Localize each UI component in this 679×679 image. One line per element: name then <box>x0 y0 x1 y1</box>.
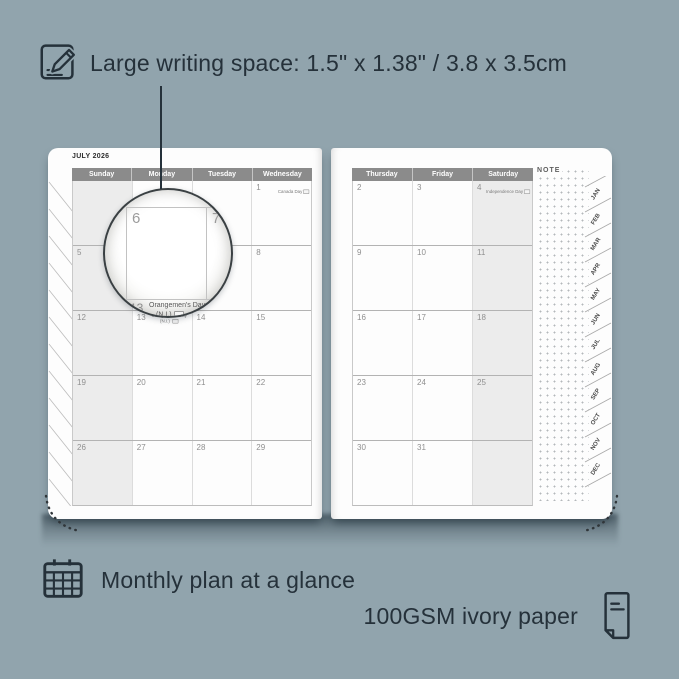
day-number: 20 <box>137 378 146 387</box>
magnified-day-13: 13 <box>130 301 143 315</box>
calendar-week-row: 161718 <box>353 310 532 375</box>
day-number: 23 <box>357 378 366 387</box>
edge-hatch-line <box>49 236 73 266</box>
edge-hatch-line <box>49 425 73 455</box>
day-number: 12 <box>77 313 86 322</box>
calendar-cell: 17 <box>412 311 472 375</box>
calendar-cell: 25 <box>472 376 532 440</box>
calendar-week-row: 26272829 <box>73 440 311 505</box>
calendar-cell: 2 <box>353 181 412 245</box>
calendar-cell: 11 <box>472 246 532 310</box>
day-number: 14 <box>197 313 206 322</box>
calendar-cell: 30 <box>353 441 412 505</box>
month-tab-nov: NOV <box>590 437 602 451</box>
holiday-label: Independence Day <box>450 183 530 201</box>
holiday-label: Canada Day <box>252 183 309 201</box>
page-curl-dotted-right <box>579 493 621 535</box>
weekday-header: Saturday <box>472 168 533 181</box>
month-tab-jul: JUL <box>591 338 602 351</box>
magnifier-grid-line <box>105 299 233 300</box>
page-curl-dotted-left <box>42 493 84 535</box>
day-number: 27 <box>137 443 146 452</box>
edge-hatch-line <box>49 452 73 482</box>
day-number: 29 <box>256 443 265 452</box>
tab-separator <box>585 423 611 437</box>
calendar-week-row: 19202122 <box>73 375 311 440</box>
weekday-header-row: ThursdayFridaySaturday <box>352 168 533 181</box>
tab-separator <box>585 348 611 362</box>
paper-icon <box>598 590 636 644</box>
tab-separator <box>585 176 611 187</box>
month-tab-oct: OCT <box>590 412 602 426</box>
magnifier-grid-line <box>126 207 127 299</box>
calendar-week-row: 234Independence Day <box>353 181 532 245</box>
tab-separator <box>585 198 611 212</box>
day-number: 26 <box>77 443 86 452</box>
magnified-holiday-region: (N.I.) <box>156 311 184 318</box>
magnifier-grid-line <box>206 207 207 299</box>
edge-hatch-line <box>49 398 73 428</box>
calendar-cell: 12 <box>73 311 132 375</box>
day-number: 11 <box>477 248 485 257</box>
day-number: 15 <box>256 313 265 322</box>
magnifier-grid-line <box>126 207 233 208</box>
flag-icon <box>524 189 530 193</box>
flag-icon <box>172 319 178 323</box>
feature-text-monthly-plan: Monthly plan at a glance <box>101 567 355 594</box>
month-index-tabs: JANFEBMARAPRMAYJUNJULAUGSEPOCTNOVDEC <box>584 176 612 496</box>
tab-separator <box>585 398 611 412</box>
weekday-header: Thursday <box>352 168 412 181</box>
weekday-header: Sunday <box>72 168 131 181</box>
calendar-cell: 22 <box>251 376 311 440</box>
month-tab-jun: JUN <box>590 313 601 326</box>
weekday-header: Tuesday <box>192 168 252 181</box>
note-label: NOTE <box>537 166 562 175</box>
page-edge-hatch <box>48 174 74 506</box>
day-number: 30 <box>357 443 366 452</box>
calendar-cell: 15 <box>251 311 311 375</box>
day-number: 3 <box>417 183 421 192</box>
day-number: 22 <box>256 378 265 387</box>
day-number: 10 <box>417 248 426 257</box>
weekday-header-row: SundayMondayTuesdayWednesday <box>72 168 312 181</box>
day-number: 24 <box>417 378 426 387</box>
magnified-holiday-name: Orangemen's Day <box>149 302 205 309</box>
calendar-cell: 14 <box>192 311 252 375</box>
calendar-cell: 1Canada Day <box>251 181 311 245</box>
edge-hatch-line <box>49 317 73 347</box>
tab-separator <box>585 248 611 262</box>
edge-hatch-line <box>49 344 73 374</box>
edge-hatch-line <box>49 209 73 239</box>
calendar-cell: 13Orangemen's Day(N.I.) <box>132 311 192 375</box>
planner-right-page: ThursdayFridaySaturday234Independence Da… <box>331 148 612 519</box>
tab-separator <box>585 448 611 462</box>
calendar-cell: 24 <box>412 376 472 440</box>
month-tab-dec: DEC <box>590 462 602 476</box>
edge-hatch-line <box>49 371 73 401</box>
day-number: 28 <box>197 443 206 452</box>
calendar-week-row: 1213Orangemen's Day(N.I.) 1415 <box>73 310 311 375</box>
month-tab-jan: JAN <box>590 188 601 201</box>
edge-hatch-line <box>49 290 73 320</box>
month-tab-feb: FEB <box>590 212 602 226</box>
month-tab-apr: APR <box>590 262 602 276</box>
day-number: 18 <box>477 313 486 322</box>
tab-separator <box>585 273 611 287</box>
calendar-cell: 20 <box>132 376 192 440</box>
holiday-name: Canada Day <box>277 189 301 194</box>
calendar-cell: 19 <box>73 376 132 440</box>
pencil-note-icon <box>36 37 82 85</box>
tab-separator <box>585 473 611 487</box>
calendar-grid-right: ThursdayFridaySaturday234Independence Da… <box>352 168 533 506</box>
calendar-cell: 9 <box>353 246 412 310</box>
calendar-cell: 10 <box>412 246 472 310</box>
edge-hatch-line <box>49 182 73 212</box>
calendar-cell: 29 <box>251 441 311 505</box>
holiday-region: (N.I.) <box>160 319 171 324</box>
holiday-name: Independence Day <box>486 189 523 194</box>
callout-pointer-line <box>160 86 162 189</box>
calendar-cell: 23 <box>353 376 412 440</box>
calendar-cell: 21 <box>192 376 252 440</box>
day-number: 31 <box>417 443 426 452</box>
flag-icon <box>303 189 309 193</box>
month-tab-mar: MAR <box>590 237 603 252</box>
weekday-header: Friday <box>412 168 473 181</box>
day-number: 8 <box>256 248 260 257</box>
weekday-header: Wednesday <box>252 168 312 181</box>
calendar-cell: 27 <box>132 441 192 505</box>
month-tab-aug: AUG <box>590 362 602 377</box>
day-number: 5 <box>77 248 81 257</box>
magnified-day-7: 7 <box>212 210 220 227</box>
day-number: 17 <box>417 313 426 322</box>
month-tab-may: MAY <box>590 287 602 301</box>
edge-hatch-line <box>49 263 73 293</box>
day-number: 21 <box>197 378 206 387</box>
day-number: 25 <box>477 378 486 387</box>
magnified-day-6: 6 <box>132 210 140 227</box>
month-title: JULY 2026 <box>72 153 109 160</box>
calendar-cell: 31 <box>412 441 472 505</box>
day-number: 19 <box>77 378 86 387</box>
tab-separator <box>585 323 611 337</box>
calendar-cell: 18 <box>472 311 532 375</box>
day-number: 9 <box>357 248 361 257</box>
day-number: 16 <box>357 313 366 322</box>
calendar-icon <box>40 555 86 603</box>
calendar-cell: 8 <box>251 246 311 310</box>
calendar-cell <box>472 441 532 505</box>
calendar-week-row: 232425 <box>353 375 532 440</box>
day-number: 2 <box>357 183 361 192</box>
calendar-week-row: 3031 <box>353 440 532 505</box>
tab-separator <box>585 298 611 312</box>
magnifier-circle: 6 7 13 Orangemen's Day (N.I.) <box>103 188 233 318</box>
calendar-week-row: 91011 <box>353 245 532 310</box>
calendar-body: 234Independence Day910111617182324253031 <box>352 181 533 506</box>
feature-text-writing-space: Large writing space: 1.5" x 1.38" / 3.8 … <box>90 50 567 77</box>
note-dot-grid: NOTE <box>537 168 589 501</box>
month-tab-sep: SEP <box>590 388 601 401</box>
tab-separator <box>585 223 611 237</box>
tab-separator <box>585 373 611 387</box>
calendar-cell: 28 <box>192 441 252 505</box>
calendar-cell: 16 <box>353 311 412 375</box>
calendar-cell: 4Independence Day <box>472 181 532 245</box>
feature-text-paper: 100GSM ivory paper <box>363 603 578 630</box>
